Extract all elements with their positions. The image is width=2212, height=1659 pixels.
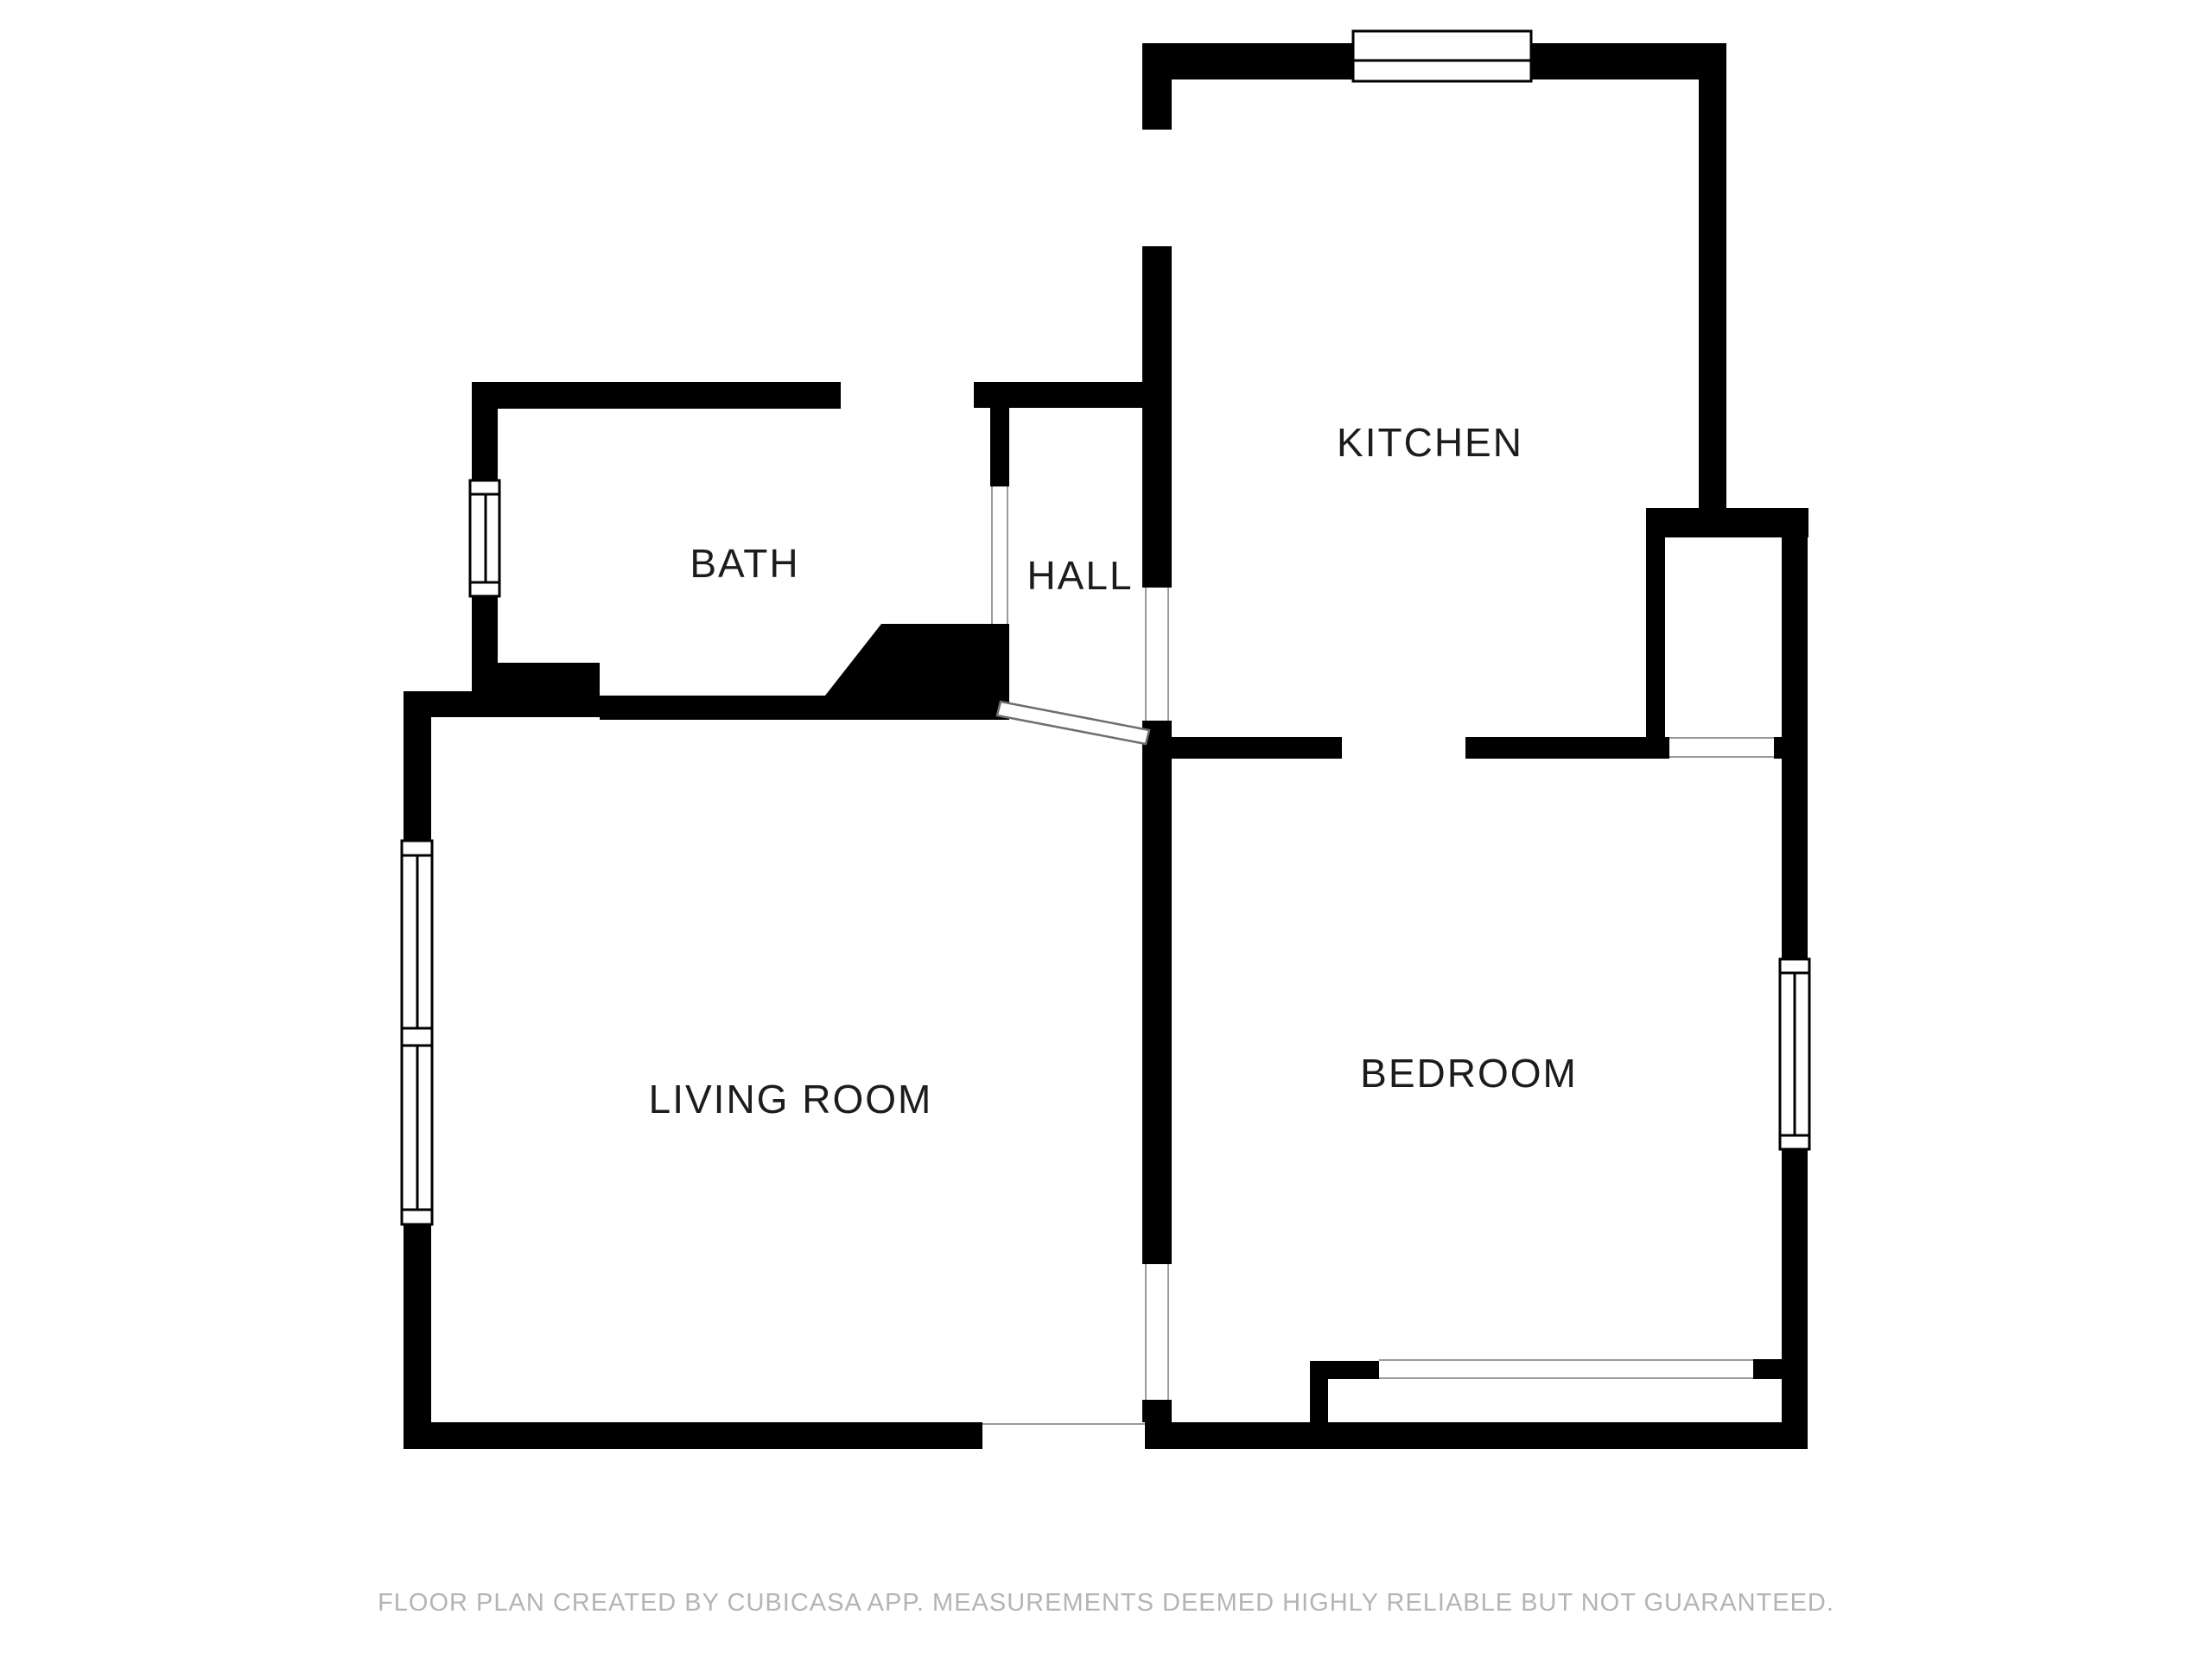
- wall-bedroom-right-lower: [1782, 1147, 1808, 1449]
- wall-bedroom-top-east: [1465, 737, 1669, 759]
- wall-kitchen-right: [1699, 43, 1726, 508]
- wall-nook-left: [1646, 537, 1665, 759]
- room-label-bath: BATH: [690, 541, 799, 586]
- wall-bath-bottom-west: [472, 663, 600, 717]
- wall-bedroom-left-stub: [1142, 1400, 1172, 1422]
- room-label-kitchen: KITCHEN: [1337, 420, 1523, 465]
- wall-hall-top: [974, 382, 1172, 408]
- wall-kitchen-left-upper: [1142, 79, 1172, 130]
- room-label-hall: HALL: [1027, 553, 1133, 598]
- wall-bath-top: [472, 382, 841, 409]
- wall-hall-right-bedroom-left-upper: [1142, 721, 1172, 1264]
- floor-plan-drawing: KITCHEN BATH HALL LIVING ROOM BEDROOM FL…: [0, 0, 2212, 1659]
- wall-bedroom-right-upper: [1782, 537, 1808, 961]
- wall-living-left-upper: [404, 691, 431, 842]
- wall-kitchen-left-mid: [1142, 246, 1172, 588]
- window-kitchen-top: [1353, 31, 1531, 81]
- footer-disclaimer: FLOOR PLAN CREATED BY CUBICASA APP. MEAS…: [378, 1589, 1834, 1617]
- wall-bedroom-top-west: [1172, 737, 1342, 759]
- wall-living-left-lower: [404, 1223, 431, 1449]
- room-label-living-room: LIVING ROOM: [649, 1077, 933, 1122]
- wall-bath-left-upper: [472, 409, 498, 482]
- window-bath-left: [470, 480, 499, 596]
- wall-bedroom-bottom-corner-block: [1753, 1359, 1782, 1379]
- window-bedroom-bottom-band: [1379, 1359, 1753, 1379]
- room-label-bedroom: BEDROOM: [1360, 1051, 1578, 1096]
- window-bedroom-right: [1780, 959, 1809, 1149]
- plan-background: [0, 0, 2212, 1659]
- wall-bedroom-top-corner: [1774, 737, 1782, 759]
- window-living-left: [402, 841, 432, 1224]
- wall-nook-top: [1646, 508, 1808, 537]
- wall-bedroom-step-horizontal: [1310, 1361, 1379, 1379]
- wall-hall-left: [990, 408, 1009, 486]
- wall-bottom-living: [404, 1422, 982, 1449]
- floor-plan-canvas: KITCHEN BATH HALL LIVING ROOM BEDROOM FL…: [0, 0, 2212, 1659]
- wall-bottom-bedroom: [1145, 1422, 1808, 1449]
